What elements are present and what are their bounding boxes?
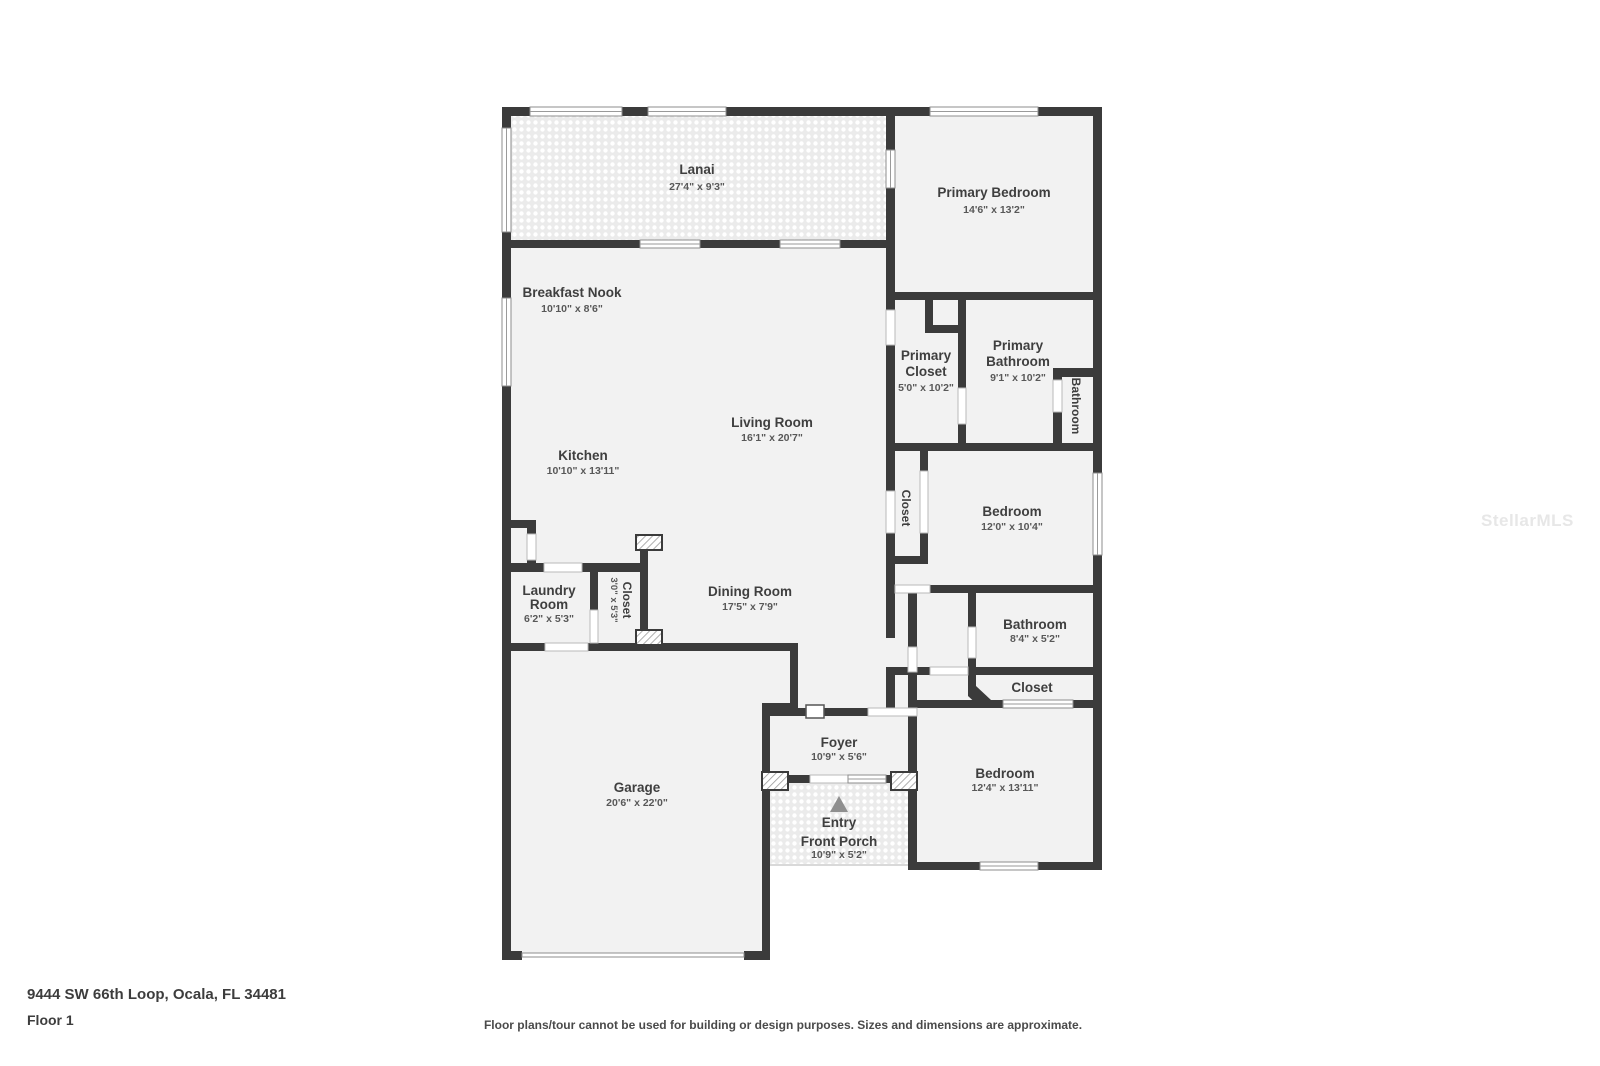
room-label-bedroom2: Bedroom	[982, 504, 1041, 519]
door-opening	[1053, 380, 1062, 412]
wall	[968, 585, 976, 627]
room-dims-primary-bathroom: 9'1" x 10'2"	[990, 372, 1046, 384]
porch-edge-line	[770, 864, 908, 866]
room-dims-front-porch: 10'9" x 5'2"	[811, 849, 867, 861]
door-opening	[527, 534, 536, 560]
column-post	[891, 772, 917, 790]
column-post	[636, 535, 662, 550]
floor-plan: Lanai 27'4" x 9'3" Primary Bedroom 14'6"…	[0, 0, 1600, 1066]
room-label-bathroom-small: Bathroom	[1069, 378, 1083, 435]
window	[780, 240, 840, 248]
window	[886, 150, 895, 188]
room-label-front-porch: Front Porch	[801, 834, 878, 849]
wall	[588, 643, 797, 651]
wall	[917, 700, 1003, 708]
door-opening	[968, 627, 976, 658]
door-opening	[544, 563, 582, 572]
lanai-floor-pattern	[511, 116, 886, 240]
window	[530, 107, 622, 116]
wall	[762, 783, 770, 960]
room-label-bathroom2: Bathroom	[1003, 617, 1067, 632]
room-label-closet-bedroom3: Closet	[1011, 680, 1053, 695]
room-label-closet-hall: Closet	[620, 582, 634, 619]
address-text: 9444 SW 66th Loop, Ocala, FL 34481	[27, 986, 286, 1003]
door-opening	[590, 610, 598, 643]
column-post	[762, 772, 788, 790]
wall	[744, 951, 762, 960]
room-dims-laundry: 6'2" x 5'3"	[524, 613, 574, 625]
wall	[886, 292, 1102, 300]
wall	[886, 593, 895, 638]
disclaimer-text: Floor plans/tour cannot be used for buil…	[0, 1018, 1566, 1032]
wall	[640, 550, 648, 632]
room-dims-bathroom2: 8'4" x 5'2"	[1010, 633, 1060, 645]
wall	[824, 708, 868, 716]
room-label-entry: Entry	[822, 815, 857, 830]
room-dims-living-room: 16'1" x 20'7"	[741, 432, 803, 444]
window	[1003, 700, 1073, 708]
room-dims-primary-closet: 5'0" x 10'2"	[898, 382, 954, 394]
window	[502, 128, 511, 232]
room-dims-kitchen: 10'10" x 13'11"	[547, 465, 620, 477]
door-opening	[868, 708, 917, 716]
room-label-foyer: Foyer	[821, 735, 859, 750]
room-label-bedroom3: Bedroom	[975, 766, 1034, 781]
door-opening	[908, 647, 917, 672]
wall	[958, 292, 966, 388]
room-dims-bedroom3: 12'4" x 13'11"	[972, 782, 1039, 794]
room-label-breakfast-nook: Breakfast Nook	[522, 285, 622, 300]
room-label-laundry-2: Room	[530, 597, 568, 612]
front-door	[806, 705, 824, 718]
window	[648, 107, 726, 116]
room-dims-bedroom2: 12'0" x 10'4"	[981, 521, 1043, 533]
wall	[502, 643, 545, 651]
window	[502, 298, 511, 386]
room-label-living-room: Living Room	[731, 415, 813, 430]
room-label-primary-closet-2: Closet	[905, 364, 947, 379]
door-opening	[920, 471, 928, 533]
room-label-lanai: Lanai	[679, 162, 714, 177]
wall	[908, 593, 917, 647]
door-opening	[958, 388, 966, 424]
room-dims-primary-bedroom: 14'6" x 13'2"	[963, 204, 1025, 216]
wall	[1073, 700, 1102, 708]
room-label-kitchen: Kitchen	[558, 448, 608, 463]
wall	[762, 708, 770, 777]
room-dims-closet-hall: 3'0" x 5'3"	[608, 577, 619, 622]
window	[980, 862, 1038, 870]
watermark: StellarMLS	[1481, 511, 1574, 531]
door-opening	[545, 643, 588, 651]
wall	[920, 443, 928, 471]
room-label-primary-bathroom-1: Primary	[993, 338, 1044, 353]
door-opening	[886, 310, 895, 345]
door-opening	[895, 585, 930, 593]
wall	[886, 556, 928, 564]
room-dims-breakfast-nook: 10'10" x 8'6"	[541, 303, 603, 315]
wall	[502, 107, 511, 960]
window	[1093, 473, 1102, 555]
wall	[930, 585, 1102, 593]
room-dims-foyer: 10'9" x 5'6"	[811, 751, 867, 763]
wall	[886, 345, 895, 491]
room-label-primary-bedroom: Primary Bedroom	[937, 185, 1050, 200]
wall	[502, 951, 522, 960]
door-opening	[886, 491, 895, 533]
wall	[886, 443, 1102, 451]
room-label-primary-bathroom-2: Bathroom	[986, 354, 1050, 369]
door-opening	[810, 775, 848, 783]
wall	[1053, 368, 1062, 380]
garage-door	[522, 953, 744, 957]
room-dims-garage: 20'6" x 22'0"	[606, 797, 668, 809]
room-dims-lanai: 27'4" x 9'3"	[669, 181, 725, 193]
window	[930, 107, 1038, 116]
wall	[886, 248, 895, 310]
window	[640, 240, 700, 248]
room-fills	[506, 111, 1098, 956]
wall	[590, 572, 598, 610]
room-dims-dining-room: 17'5" x 7'9"	[722, 601, 778, 613]
room-label-dining-room: Dining Room	[708, 584, 792, 599]
wall	[908, 862, 980, 870]
room-label-closet-bedroom2: Closet	[899, 490, 913, 527]
window	[848, 775, 886, 783]
wall	[762, 703, 798, 711]
wall	[968, 667, 1102, 675]
wall	[502, 563, 544, 572]
room-label-primary-closet-1: Primary	[901, 348, 952, 363]
wall	[1038, 862, 1102, 870]
wall	[790, 643, 798, 710]
wall	[886, 675, 895, 711]
wall	[582, 563, 646, 572]
wall	[527, 520, 536, 534]
room-label-laundry-1: Laundry	[522, 583, 576, 598]
column-post	[636, 630, 662, 645]
room-label-garage: Garage	[614, 780, 661, 795]
door-opening	[930, 667, 968, 675]
